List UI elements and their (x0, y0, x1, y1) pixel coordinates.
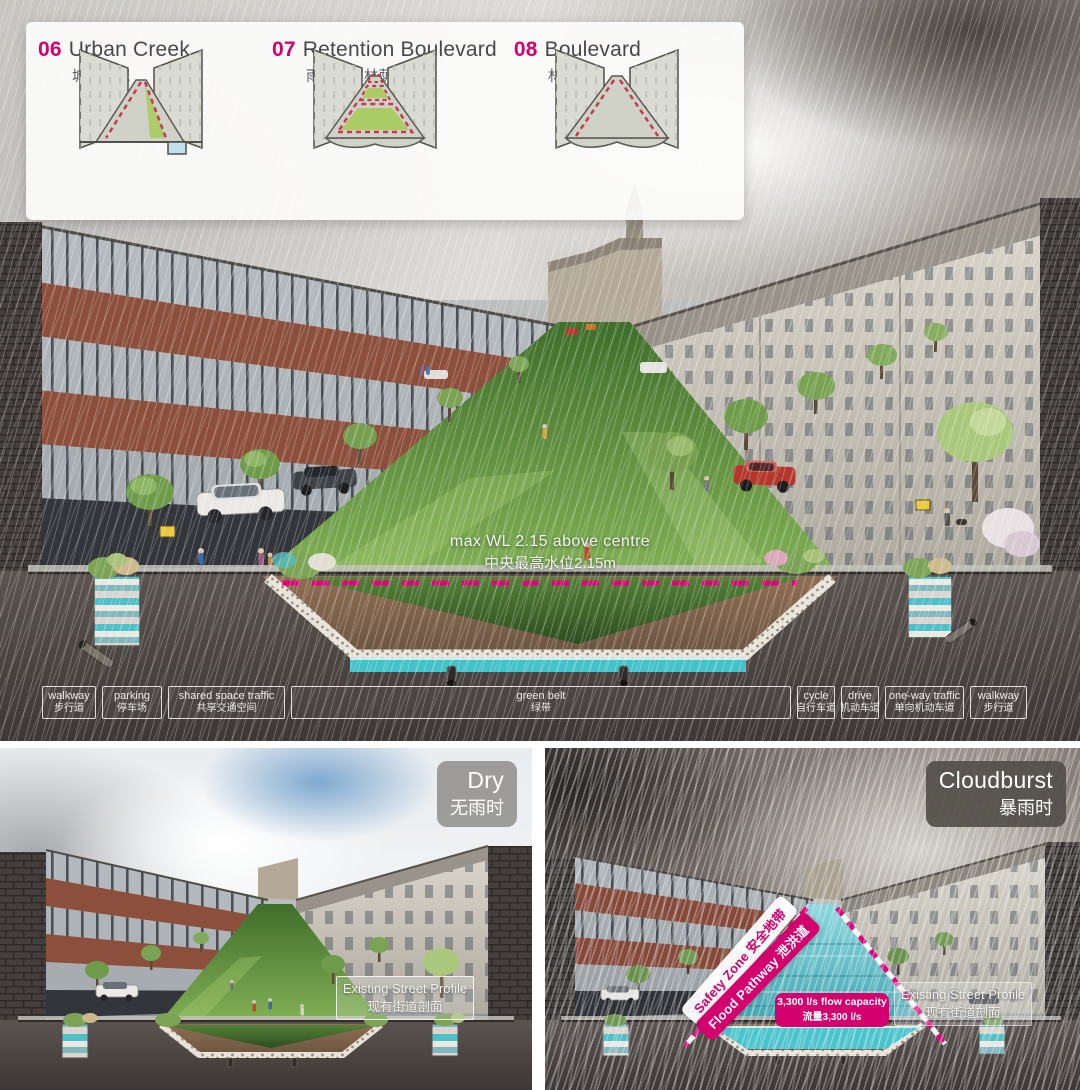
cloudburst-profile-label: Existing Street Profile 现有街道剖面 (894, 982, 1032, 1026)
parking-sign-right (916, 500, 930, 510)
zone-box-one-way: one-way traffic单向机动车道 (885, 686, 964, 719)
zone-box-parking: parking停车场 (102, 686, 162, 719)
legend-item-number: 07 (272, 38, 296, 61)
left-cutaway-wall (0, 222, 42, 575)
drainage-pipe-left (447, 666, 456, 686)
annotation-max-wl-zh: 中央最高水位2.15m (420, 552, 680, 573)
dry-bioswale-right (432, 1024, 458, 1056)
cloudburst-panel: Cloudburst 暴雨时 Safety Zone 安全地带 Flood Pa… (545, 748, 1080, 1090)
cloudburst-badge: Cloudburst 暴雨时 (926, 761, 1066, 827)
retention-boulevard-section-diagram (300, 46, 450, 158)
cb-left-cutaway-wall (545, 858, 575, 1022)
dry-badge: Dry 无雨时 (437, 761, 517, 827)
cb-right-cutaway-wall (1045, 842, 1080, 1022)
zone-bar: walkway步行道 parking停车场 shared space traff… (42, 686, 1027, 719)
dry-panel: Dry 无雨时 Existing Street Profile 现有街道剖面 (0, 748, 532, 1090)
dry-profile-label: Existing Street Profile 现有街道剖面 (336, 976, 474, 1020)
annotation-max-wl-en: max WL 2.15 above centre (420, 533, 680, 551)
annotation-max-wl: max WL 2.15 above centre 中央最高水位2.15m (420, 533, 680, 573)
zone-box-shared-space: shared space traffic共享交通空间 (168, 686, 285, 719)
main-scene: max WL 2.15 above centre 中央最高水位2.15m wal… (0, 0, 1080, 741)
zone-box-cycle: cycle自行车道 (797, 686, 835, 719)
flow-capacity-label: 3,300 l/s flow capacity 流量3,300 l/s (775, 993, 889, 1027)
legend-item-boulevard: 08Boulevard 林荫道 (514, 38, 744, 220)
cloudburst-masterplan-poster: max WL 2.15 above centre 中央最高水位2.15m wal… (0, 0, 1080, 1090)
zone-box-walkway-right: walkway步行道 (970, 686, 1027, 719)
zone-box-walkway-left: walkway步行道 (42, 686, 96, 719)
legend-panel: 06Urban Creek 城市溪流 07Retention Boulevard (26, 22, 744, 220)
dry-right-cutaway-wall (488, 846, 532, 1022)
legend-item-retention-boulevard: 07Retention Boulevard 雨水滞留林荫道 (272, 38, 514, 220)
car-distant-1 (640, 362, 667, 373)
cb-pipe-right (841, 1056, 846, 1065)
legend-item-number: 06 (38, 38, 62, 61)
parking-sign-left (160, 526, 175, 537)
urban-creek-section-diagram (66, 46, 216, 158)
cb-basin-water (711, 1026, 921, 1049)
dry-pipe-right (292, 1058, 297, 1067)
boulevard-section-diagram (542, 46, 692, 158)
legend-item-number: 08 (514, 38, 538, 61)
right-cutaway-wall (1040, 198, 1080, 575)
dry-left-cutaway-wall (0, 852, 46, 1022)
cb-bioswale-left (603, 1024, 629, 1056)
cb-bioswale-right (979, 1024, 1005, 1054)
cb-pipe-left (775, 1056, 780, 1065)
drainage-pipe-right (619, 666, 628, 686)
zone-box-green-belt: green belt绿带 (291, 686, 791, 719)
zone-box-drive: drive机动车道 (841, 686, 879, 719)
drainage-channel (350, 658, 746, 672)
dry-pipe-left (228, 1058, 233, 1067)
dry-bioswale-left (62, 1024, 88, 1058)
dry-soil-cross-section (0, 1013, 532, 1090)
legend-item-urban-creek: 06Urban Creek 城市溪流 (38, 38, 272, 220)
